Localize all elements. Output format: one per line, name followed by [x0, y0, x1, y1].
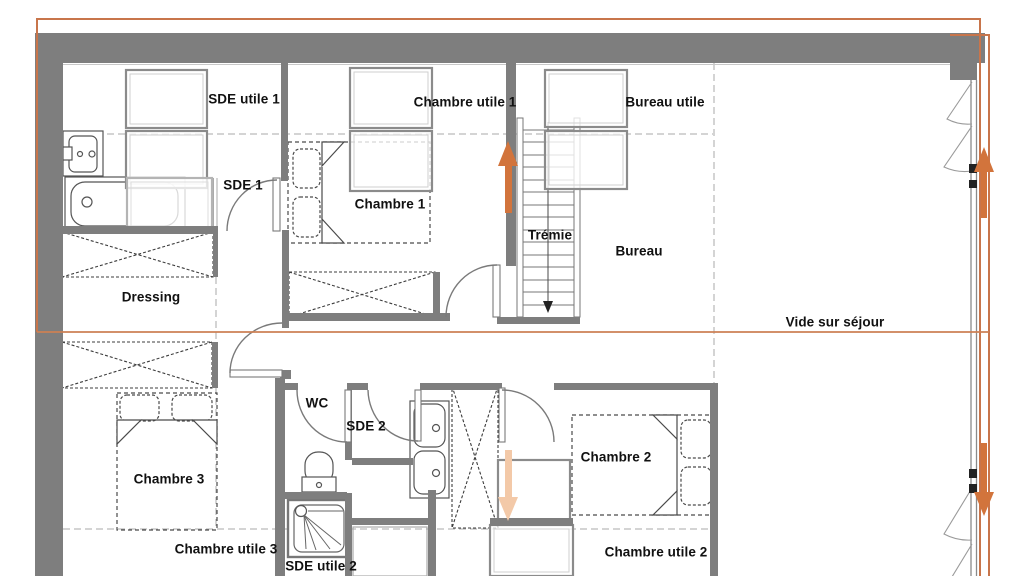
wall-top [37, 33, 985, 63]
wardrobe-cap [212, 342, 218, 388]
roof-window [126, 70, 207, 128]
door-chambre-2 [499, 388, 554, 442]
room-label-chambre-utile-3: Chambre utile 3 [175, 542, 278, 557]
direction-arrows [498, 141, 994, 521]
room-label-bureau: Bureau [615, 244, 662, 259]
room-label-chambre-utile-2: Chambre utile 2 [605, 545, 708, 560]
wardrobe-chambre-3 [62, 342, 212, 388]
window-handles [969, 164, 977, 493]
casement-window [944, 488, 972, 540]
wall-under-bathtub [63, 226, 218, 234]
room-label-wc: WC [306, 396, 329, 411]
room-label-sde-utile-1: SDE utile 1 [208, 92, 280, 107]
room-label-tremie: Trémie [528, 228, 572, 243]
wall-top-right-notch [950, 63, 977, 80]
casement-window [947, 82, 972, 124]
bed-chambre-2 [572, 415, 713, 515]
washbasin-sde1 [63, 131, 103, 176]
wall-mid-vertical [428, 490, 436, 576]
wall-under-toilet [285, 492, 347, 499]
wardrobe-chambre-1 [289, 272, 435, 317]
wardrobe-chambre-2 [452, 386, 498, 528]
floorplan-page: SDE utile 1 SDE 1 Chambre utile 1 Chambr… [0, 0, 1024, 576]
wardrobe-cap [283, 272, 289, 317]
roof-window [545, 70, 627, 127]
stair-stringer-left [517, 118, 523, 317]
wall-wc-top [285, 383, 298, 390]
roof-window [350, 131, 432, 191]
wardrobe-dressing [62, 232, 213, 277]
room-label-chambre-1: Chambre 1 [355, 197, 426, 212]
stair-direction-arrow [543, 301, 553, 313]
wall-mid-bottom-2 [490, 518, 573, 526]
toilet-wc [302, 452, 336, 492]
wall-sde2-bottom [352, 458, 413, 465]
wardrobe-cap [433, 272, 440, 317]
wall-sde1-right-upper [281, 63, 288, 181]
wall-wc-sde2 [347, 383, 368, 390]
floorplan-drawing [0, 0, 1024, 576]
wall-chambre2-right [710, 383, 718, 576]
room-label-sde-1: SDE 1 [223, 178, 263, 193]
room-label-chambre-3: Chambre 3 [134, 472, 205, 487]
bed-chambre-3 [117, 393, 217, 530]
roof-window [545, 131, 627, 189]
shower-screen-sde1 [214, 178, 218, 231]
door-chambre-1 [446, 265, 500, 317]
wall-sde2-top [420, 383, 502, 390]
room-label-vide-sur-sejour: Vide sur séjour [786, 315, 885, 330]
wall-mid-bottom-1 [350, 518, 436, 525]
wardrobe-cap [213, 232, 218, 277]
wall-chambre2-top [554, 383, 714, 390]
casement-window [944, 126, 972, 172]
fixtures [63, 131, 449, 557]
wall-stairs-bottom [497, 317, 580, 324]
room-label-chambre-utile-1: Chambre utile 1 [414, 95, 517, 110]
room-label-dressing: Dressing [122, 290, 181, 305]
floor-area-outline [353, 527, 427, 576]
roof-window [490, 525, 573, 576]
wall-chambre1-bottom [283, 313, 450, 321]
room-label-sde-2: SDE 2 [346, 419, 386, 434]
shower-sde-utile-2 [288, 500, 350, 557]
room-label-sde-utile-2: SDE utile 2 [285, 559, 357, 574]
roof-window [127, 178, 212, 232]
facade-windows [944, 80, 977, 576]
room-label-bureau-utile: Bureau utile [625, 95, 704, 110]
casement-window [944, 544, 972, 576]
wall-left [35, 33, 63, 576]
room-label-chambre-2: Chambre 2 [581, 450, 652, 465]
